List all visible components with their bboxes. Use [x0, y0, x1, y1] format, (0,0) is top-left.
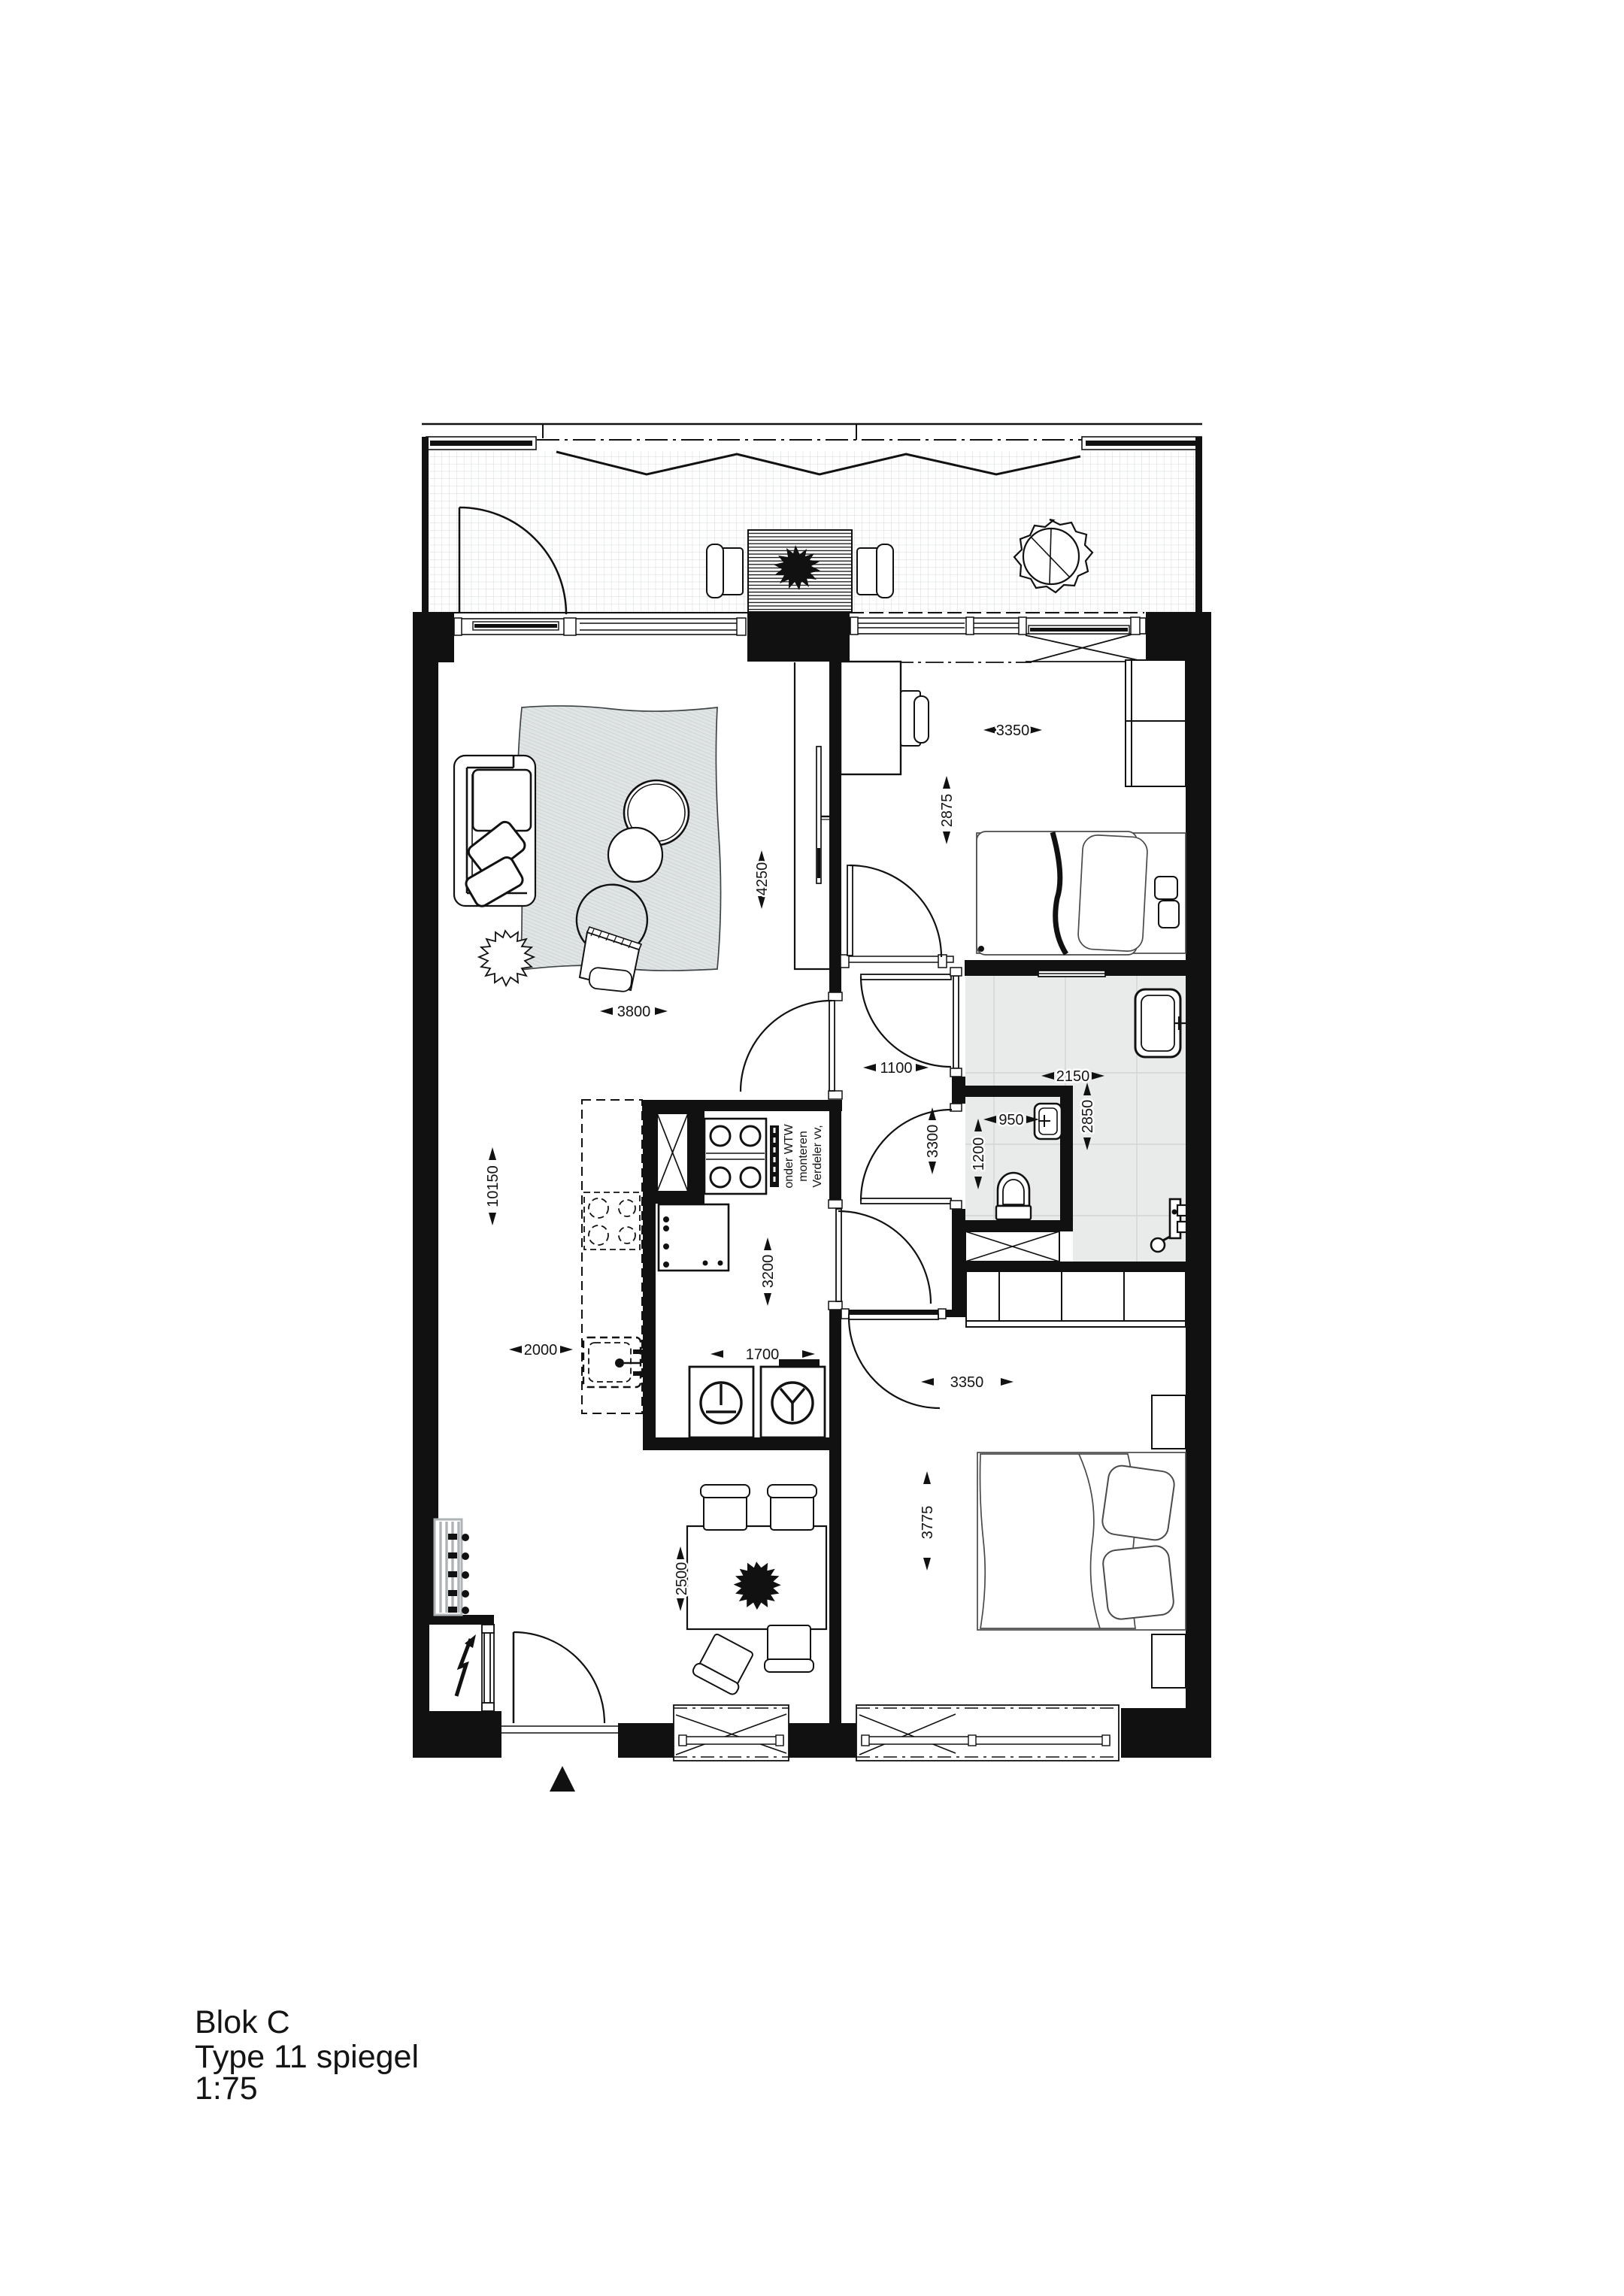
svg-text:2850: 2850: [1080, 1100, 1096, 1134]
svg-text:onder WTW: onder WTW: [783, 1123, 795, 1188]
svg-text:1100: 1100: [880, 1060, 912, 1077]
svg-text:950: 950: [998, 1112, 1023, 1128]
svg-text:1:75: 1:75: [195, 2070, 258, 2107]
svg-text:3800: 3800: [617, 1004, 651, 1020]
svg-text:2500: 2500: [674, 1562, 690, 1596]
svg-text:3200: 3200: [760, 1255, 777, 1289]
svg-text:2000: 2000: [524, 1342, 558, 1359]
svg-text:3350: 3350: [996, 722, 1030, 739]
svg-text:Verdeler vv,: Verdeler vv,: [811, 1125, 824, 1187]
svg-text:3775: 3775: [920, 1506, 936, 1540]
svg-text:1200: 1200: [971, 1137, 987, 1171]
svg-text:Blok C: Blok C: [195, 2004, 290, 2040]
svg-text:Type 11 spiegel: Type 11 spiegel: [195, 2039, 419, 2075]
svg-text:monteren: monteren: [797, 1131, 810, 1182]
svg-text:2875: 2875: [939, 794, 956, 828]
svg-text:1700: 1700: [746, 1346, 780, 1363]
svg-text:3300: 3300: [925, 1125, 941, 1159]
svg-text:2150: 2150: [1056, 1068, 1090, 1085]
svg-text:3350: 3350: [950, 1374, 984, 1391]
svg-text:4250: 4250: [754, 862, 771, 896]
svg-text:10150: 10150: [485, 1165, 501, 1207]
